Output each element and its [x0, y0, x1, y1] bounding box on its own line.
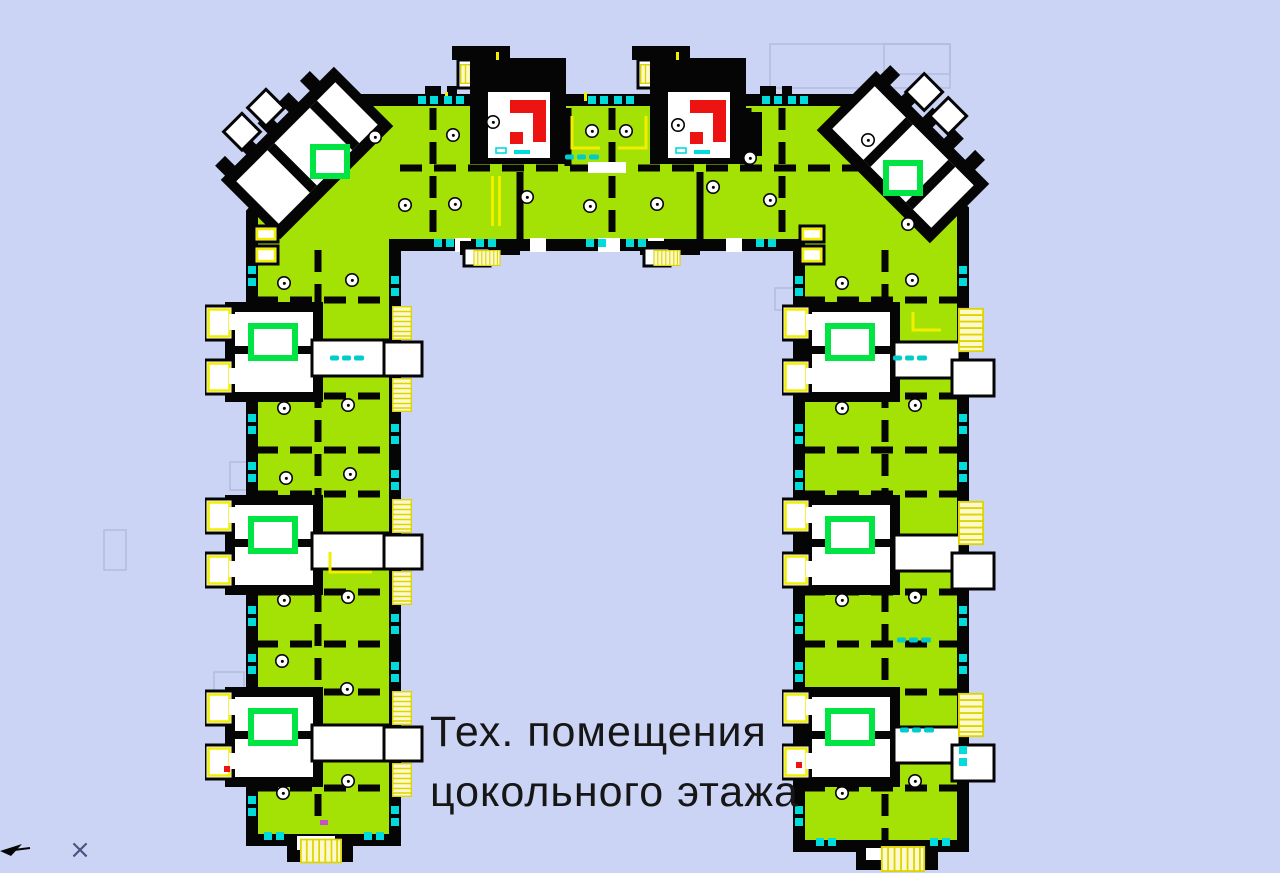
elevator-shaft [313, 147, 347, 176]
annotation-line-1: Тех. помещения [430, 708, 767, 756]
floor-plan-drawing: Тех. помещения цокольного этажа × [0, 0, 1280, 873]
right-wing-bottom-entrance [856, 847, 938, 871]
annotation-line-2: цокольного этажа [430, 768, 799, 816]
cad-viewport: Тех. помещения цокольного этажа × [0, 0, 1280, 873]
left-wing-bottom-entrance [287, 836, 353, 862]
x-cursor-mark: × [69, 835, 91, 865]
elevator-shaft [886, 163, 920, 193]
